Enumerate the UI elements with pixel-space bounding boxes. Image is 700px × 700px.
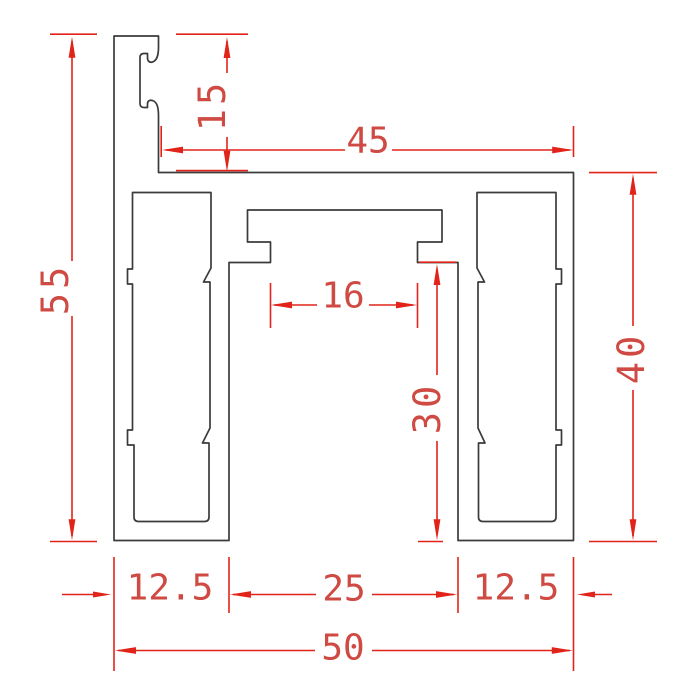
dim-left-leg-width: 12.5 — [62, 568, 213, 609]
dim-label-45: 45 — [346, 121, 389, 162]
dim-total-height: 55 — [34, 34, 97, 541]
dim-slot-opening: 16 — [271, 276, 418, 328]
profile-drawing: 55 15 45 40 16 — [0, 0, 700, 700]
dim-right-height: 40 — [589, 173, 657, 542]
dim-top-hook-height: 15 — [176, 34, 248, 172]
dim-channel-width: 25 — [230, 569, 457, 610]
drawing-canvas: 55 15 45 40 16 — [0, 0, 700, 700]
left-leg-cavity — [128, 193, 212, 522]
dim-label-25: 25 — [322, 569, 365, 610]
dim-label-12-5-left: 12.5 — [127, 568, 214, 609]
dim-label-55: 55 — [34, 263, 77, 316]
right-leg-cavity — [477, 193, 562, 522]
dim-total-width: 50 — [115, 628, 573, 669]
dim-label-15: 15 — [191, 79, 234, 132]
dim-label-50: 50 — [321, 628, 364, 669]
dim-label-16: 16 — [321, 276, 364, 317]
dim-label-12-5-right: 12.5 — [473, 568, 560, 609]
dim-label-40: 40 — [610, 332, 653, 385]
dim-right-leg-width: 12.5 — [473, 568, 612, 609]
dim-channel-height: 30 — [406, 262, 456, 541]
dim-label-30: 30 — [406, 382, 449, 435]
